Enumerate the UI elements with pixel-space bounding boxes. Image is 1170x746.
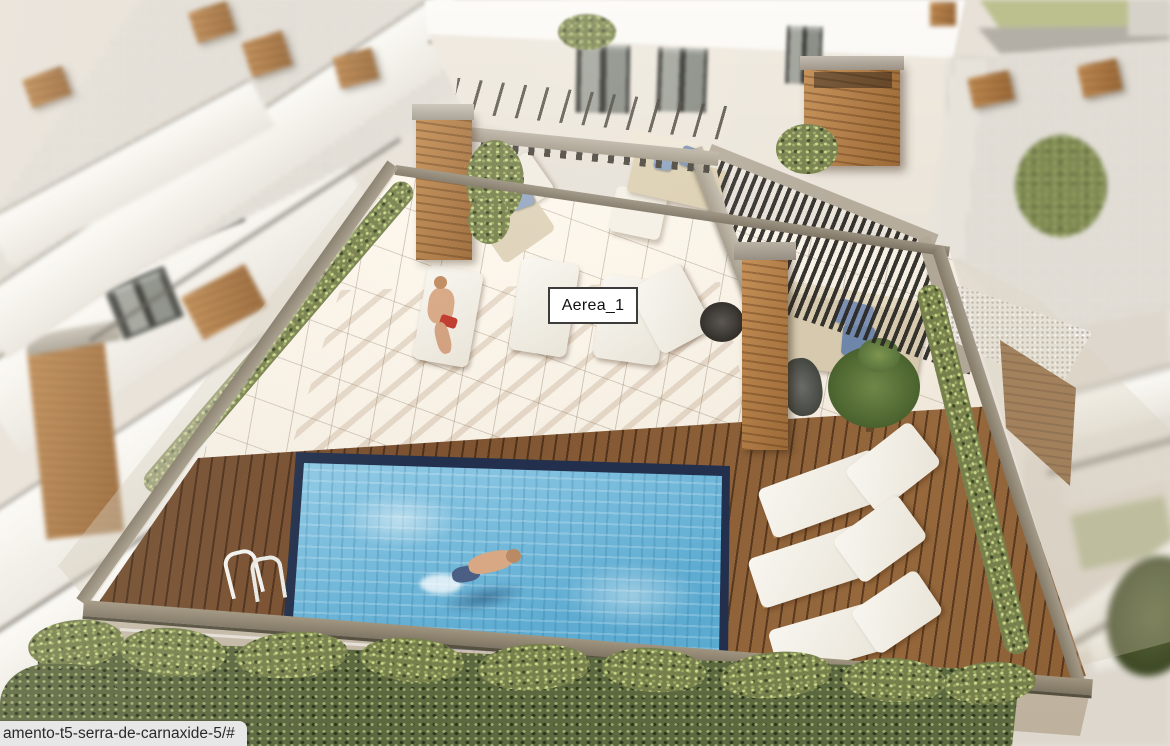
swimmer-head: [506, 549, 521, 563]
browser-viewport: Aerea_1 amento-t5-serra-de-carnaxide-5/#: [0, 0, 1170, 746]
shrub: [468, 196, 510, 244]
browser-status-bar: amento-t5-serra-de-carnaxide-5/#: [0, 721, 247, 746]
shrub: [558, 14, 616, 50]
planter-interior: [814, 72, 892, 88]
stone-pot: [700, 302, 744, 342]
pergola-column: [742, 252, 788, 450]
water-caustic: [560, 560, 700, 630]
shrub: [776, 124, 838, 174]
column-cap: [734, 242, 796, 260]
planter-cap: [412, 104, 474, 120]
person-head: [434, 276, 447, 289]
wood-planter-column: [416, 112, 472, 260]
panorama-scene[interactable]: Aerea_1: [0, 0, 1170, 746]
water-caustic: [340, 490, 460, 550]
hotspot-aerea-1[interactable]: Aerea_1: [548, 287, 638, 324]
status-url-text: amento-t5-serra-de-carnaxide-5/#: [3, 725, 235, 742]
planter-cap: [800, 56, 904, 70]
